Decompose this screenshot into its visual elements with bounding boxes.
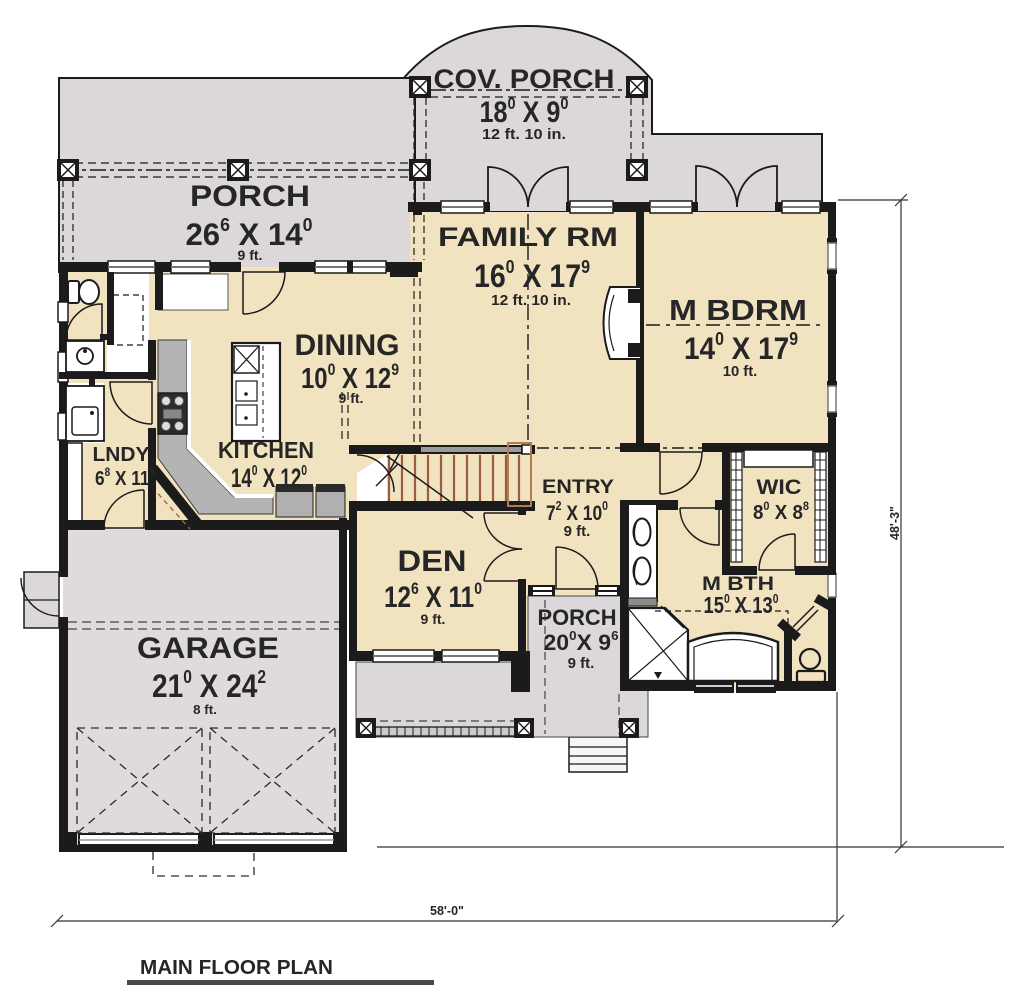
- svg-text:KITCHEN: KITCHEN: [218, 437, 314, 463]
- svg-text:12 ft. 10 in.: 12 ft. 10 in.: [491, 293, 571, 309]
- svg-text:48'-3": 48'-3": [888, 506, 902, 540]
- svg-text:COV. PORCH: COV. PORCH: [434, 64, 615, 94]
- svg-text:9 ft.: 9 ft.: [568, 655, 595, 672]
- svg-text:8 ft.: 8 ft.: [193, 702, 217, 717]
- svg-text:140 X 179: 140 X 179: [684, 329, 798, 366]
- svg-text:ENTRY: ENTRY: [542, 476, 614, 498]
- svg-text:M BDRM: M BDRM: [669, 295, 807, 327]
- svg-text:12 ft. 10 in.: 12 ft. 10 in.: [482, 126, 566, 143]
- svg-text:9 ft.: 9 ft.: [238, 247, 263, 263]
- svg-text:10 ft.: 10 ft.: [723, 364, 758, 380]
- svg-text:GARAGE: GARAGE: [137, 632, 279, 665]
- svg-text:DEN: DEN: [398, 545, 467, 578]
- svg-text:9 ft.: 9 ft.: [421, 611, 446, 627]
- svg-text:LNDY: LNDY: [93, 444, 151, 466]
- svg-text:210 X 242: 210 X 242: [152, 667, 266, 704]
- svg-text:80 X 88: 80 X 88: [753, 499, 809, 524]
- svg-text:200X 96: 200X 96: [544, 628, 619, 655]
- svg-text:9 ft.: 9 ft.: [339, 390, 364, 406]
- svg-text:DINING: DINING: [295, 329, 400, 362]
- svg-text:72 X 100: 72 X 100: [546, 498, 608, 525]
- svg-text:140 X 120: 140 X 120: [231, 462, 307, 493]
- svg-text:FAMILY RM: FAMILY RM: [438, 222, 618, 252]
- svg-text:126 X 110: 126 X 110: [384, 579, 482, 614]
- svg-text:9 ft.: 9 ft.: [564, 523, 591, 540]
- svg-text:58'-0": 58'-0": [430, 904, 464, 918]
- svg-text:MAIN FLOOR PLAN: MAIN FLOOR PLAN: [140, 957, 333, 979]
- svg-text:150 X 130: 150 X 130: [704, 591, 779, 618]
- svg-text:68 X 119: 68 X 119: [95, 465, 155, 490]
- svg-text:WIC: WIC: [757, 474, 802, 499]
- svg-text:160 X 179: 160 X 179: [474, 257, 590, 294]
- svg-text:180 X 90: 180 X 90: [480, 94, 569, 129]
- svg-text:PORCH: PORCH: [538, 605, 617, 630]
- svg-text:PORCH: PORCH: [190, 180, 310, 213]
